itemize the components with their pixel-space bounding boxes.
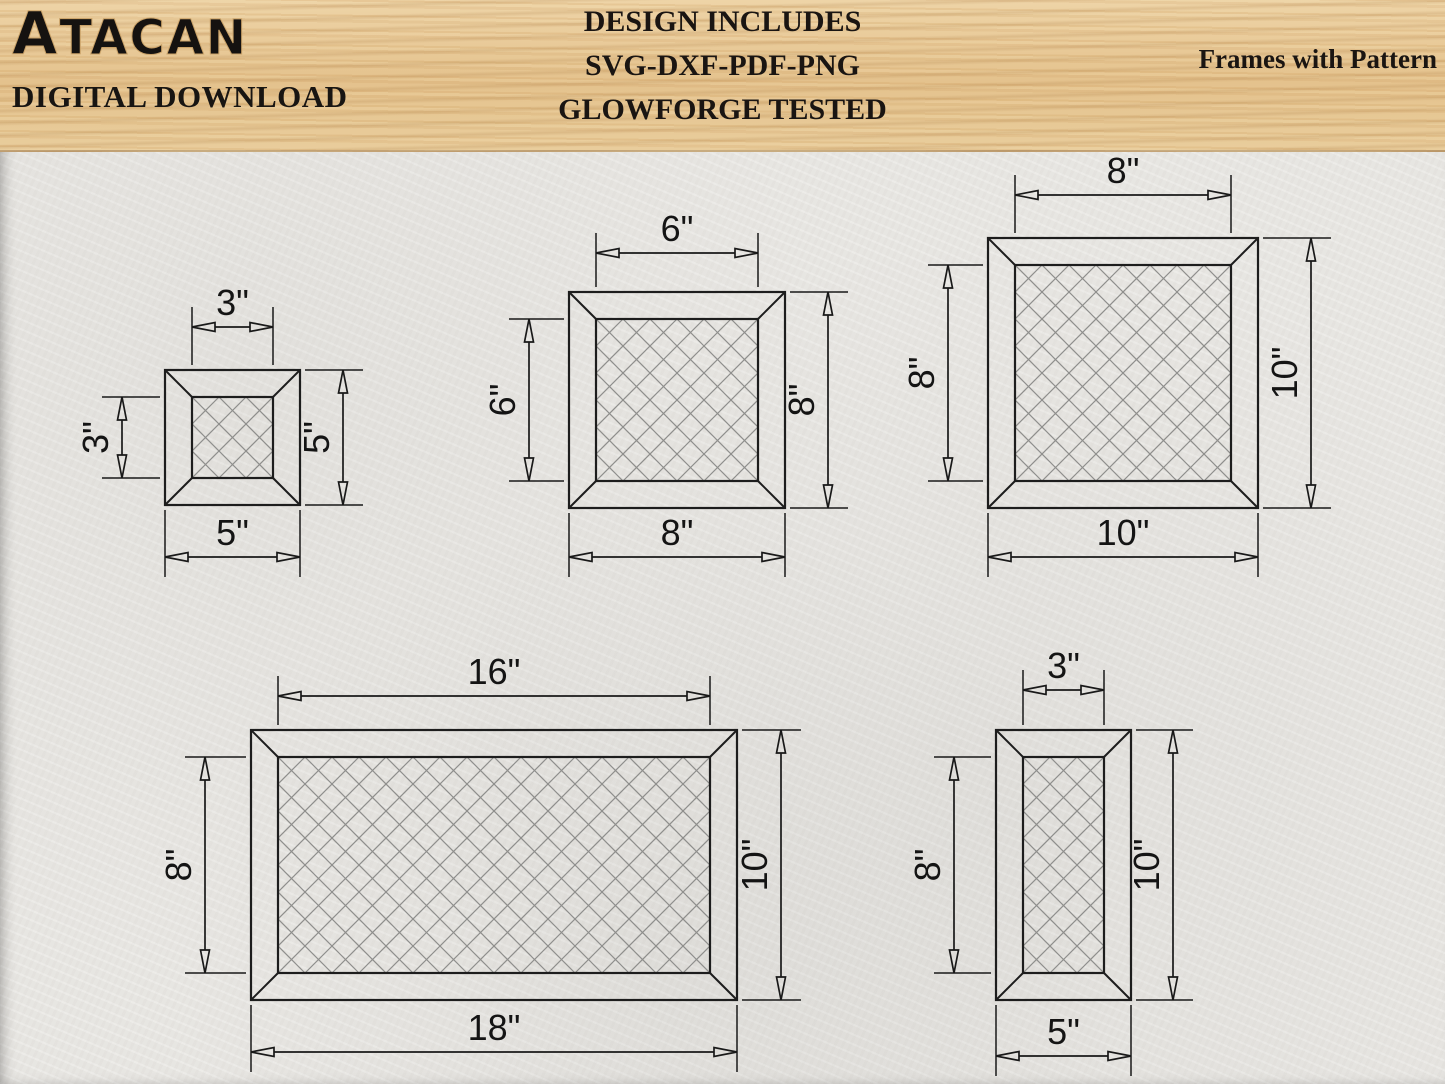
dimension-callout: 8" <box>781 292 848 508</box>
frame-square-8in: 6"8"6"8" <box>434 208 920 577</box>
dimension-callout: 10" <box>734 730 801 1000</box>
arrowhead <box>339 370 348 393</box>
inner-frame-edge <box>1023 757 1104 973</box>
dimension-label: 10" <box>734 839 775 892</box>
mitre-line <box>988 238 1015 265</box>
arrowhead <box>278 692 301 701</box>
mitre-line <box>1104 973 1131 1000</box>
dimension-callout: 10" <box>1126 730 1193 1000</box>
arrowhead <box>201 757 210 780</box>
mitre-line <box>273 478 300 505</box>
mitre-line <box>758 481 785 508</box>
mitre-line <box>251 973 278 1000</box>
arrowhead <box>1169 977 1178 1000</box>
mitre-line <box>1231 481 1258 508</box>
mitre-line <box>569 292 596 319</box>
arrowhead <box>1208 191 1231 200</box>
arrowhead <box>944 458 953 481</box>
dimension-callout: 5" <box>996 1005 1131 1076</box>
arrowhead <box>988 553 1011 562</box>
arrowhead <box>1108 1052 1131 1061</box>
dimension-callout: 10" <box>1263 238 1331 508</box>
mitre-line <box>996 973 1023 1000</box>
dimension-callout: 18" <box>251 1005 737 1072</box>
arrowhead <box>1015 191 1038 200</box>
arrowhead <box>762 553 785 562</box>
mitre-line <box>1231 238 1258 265</box>
dimension-label: 18" <box>468 1007 521 1048</box>
glowforge-tested-line: GLOWFORGE TESTED <box>0 88 1445 132</box>
dimension-label: 5" <box>1047 1011 1080 1052</box>
dimension-label: 5" <box>216 512 249 553</box>
arrowhead <box>525 458 534 481</box>
arrowhead <box>525 319 534 342</box>
mitre-line <box>251 730 278 757</box>
product-title: Frames with Pattern <box>1199 44 1437 75</box>
arrowhead <box>1169 730 1178 753</box>
dimension-label: 6" <box>482 384 523 417</box>
dimension-callout: 8" <box>907 757 991 973</box>
arrowhead <box>996 1052 1019 1061</box>
mitre-line <box>165 478 192 505</box>
mitre-line <box>758 292 785 319</box>
dimension-callout: 8" <box>1015 150 1231 233</box>
design-includes-line: DESIGN INCLUDES <box>0 0 1445 44</box>
lattice-pattern <box>807 757 1320 973</box>
dimension-label: 16" <box>468 651 521 692</box>
frame-square-10in: 8"10"8"10" <box>799 150 1445 577</box>
mitre-line <box>710 730 737 757</box>
mitre-line <box>165 370 192 397</box>
mitre-line <box>273 370 300 397</box>
mitre-line <box>710 973 737 1000</box>
product-image: 3"5"3"5"6"8"6"8"8"10"8"10"16"18"8"10"3"5… <box>0 0 1445 1084</box>
dimension-callout: 5" <box>165 510 300 577</box>
arrowhead <box>777 730 786 753</box>
dimension-label: 10" <box>1126 839 1167 892</box>
dimension-label: 8" <box>781 384 822 417</box>
dimension-callout: 8" <box>158 757 246 973</box>
arrowhead <box>1081 686 1104 695</box>
dimension-label: 10" <box>1097 512 1150 553</box>
dimension-label: 8" <box>661 512 694 553</box>
dimension-callout: 3" <box>75 397 160 478</box>
dimension-label: 8" <box>907 849 948 882</box>
arrowhead <box>569 553 592 562</box>
arrowhead <box>192 323 215 332</box>
header-banner: ATACAN DIGITAL DOWNLOAD DESIGN INCLUDES … <box>0 0 1445 152</box>
arrowhead <box>824 292 833 315</box>
dimension-label: 3" <box>1047 645 1080 686</box>
mitre-line <box>996 730 1023 757</box>
arrowhead <box>339 482 348 505</box>
dimension-label: 3" <box>216 282 249 323</box>
arrowhead <box>714 1048 737 1057</box>
arrowhead <box>277 553 300 562</box>
arrowhead <box>1307 238 1316 261</box>
dimension-label: 8" <box>901 357 942 390</box>
dimension-label: 6" <box>661 208 694 249</box>
dimension-callout: 3" <box>192 282 273 365</box>
arrowhead <box>1235 553 1258 562</box>
arrowhead <box>824 485 833 508</box>
dimension-label: 8" <box>1107 150 1140 191</box>
dimension-label: 5" <box>296 421 337 454</box>
arrowhead <box>1023 686 1046 695</box>
dimension-callout: 5" <box>296 370 363 505</box>
lattice-pattern <box>799 265 1445 481</box>
mitre-line <box>569 481 596 508</box>
dimension-label: 3" <box>75 421 116 454</box>
dimension-callout: 8" <box>569 512 785 577</box>
dimension-callout: 3" <box>1023 645 1104 725</box>
arrowhead <box>1307 485 1316 508</box>
arrowhead <box>777 977 786 1000</box>
arrowhead <box>165 553 188 562</box>
mitre-line <box>1104 730 1131 757</box>
dimension-label: 8" <box>158 849 199 882</box>
dimension-callout: 8" <box>901 265 983 481</box>
arrowhead <box>687 692 710 701</box>
arrowhead <box>118 455 127 478</box>
arrowhead <box>950 950 959 973</box>
arrowhead <box>118 397 127 420</box>
dimension-label: 10" <box>1264 347 1305 400</box>
dimension-callout: 16" <box>278 651 710 725</box>
arrowhead <box>201 950 210 973</box>
frame-rect-18x10in: 16"18"8"10" <box>62 651 926 1072</box>
arrowhead <box>250 323 273 332</box>
dimension-callout: 6" <box>596 208 758 287</box>
arrowhead <box>944 265 953 288</box>
arrowhead <box>950 757 959 780</box>
frame-square-5in: 3"5"3"5" <box>75 282 363 577</box>
frame-rect-5x10in: 3"5"8"10" <box>807 645 1320 1076</box>
arrowhead <box>251 1048 274 1057</box>
dimension-callout: 10" <box>988 512 1258 577</box>
arrowhead <box>735 249 758 258</box>
mitre-line <box>988 481 1015 508</box>
dimension-callout: 6" <box>482 319 564 481</box>
frames-diagram: 3"5"3"5"6"8"6"8"8"10"8"10"16"18"8"10"3"5… <box>0 0 1445 1084</box>
arrowhead <box>596 249 619 258</box>
